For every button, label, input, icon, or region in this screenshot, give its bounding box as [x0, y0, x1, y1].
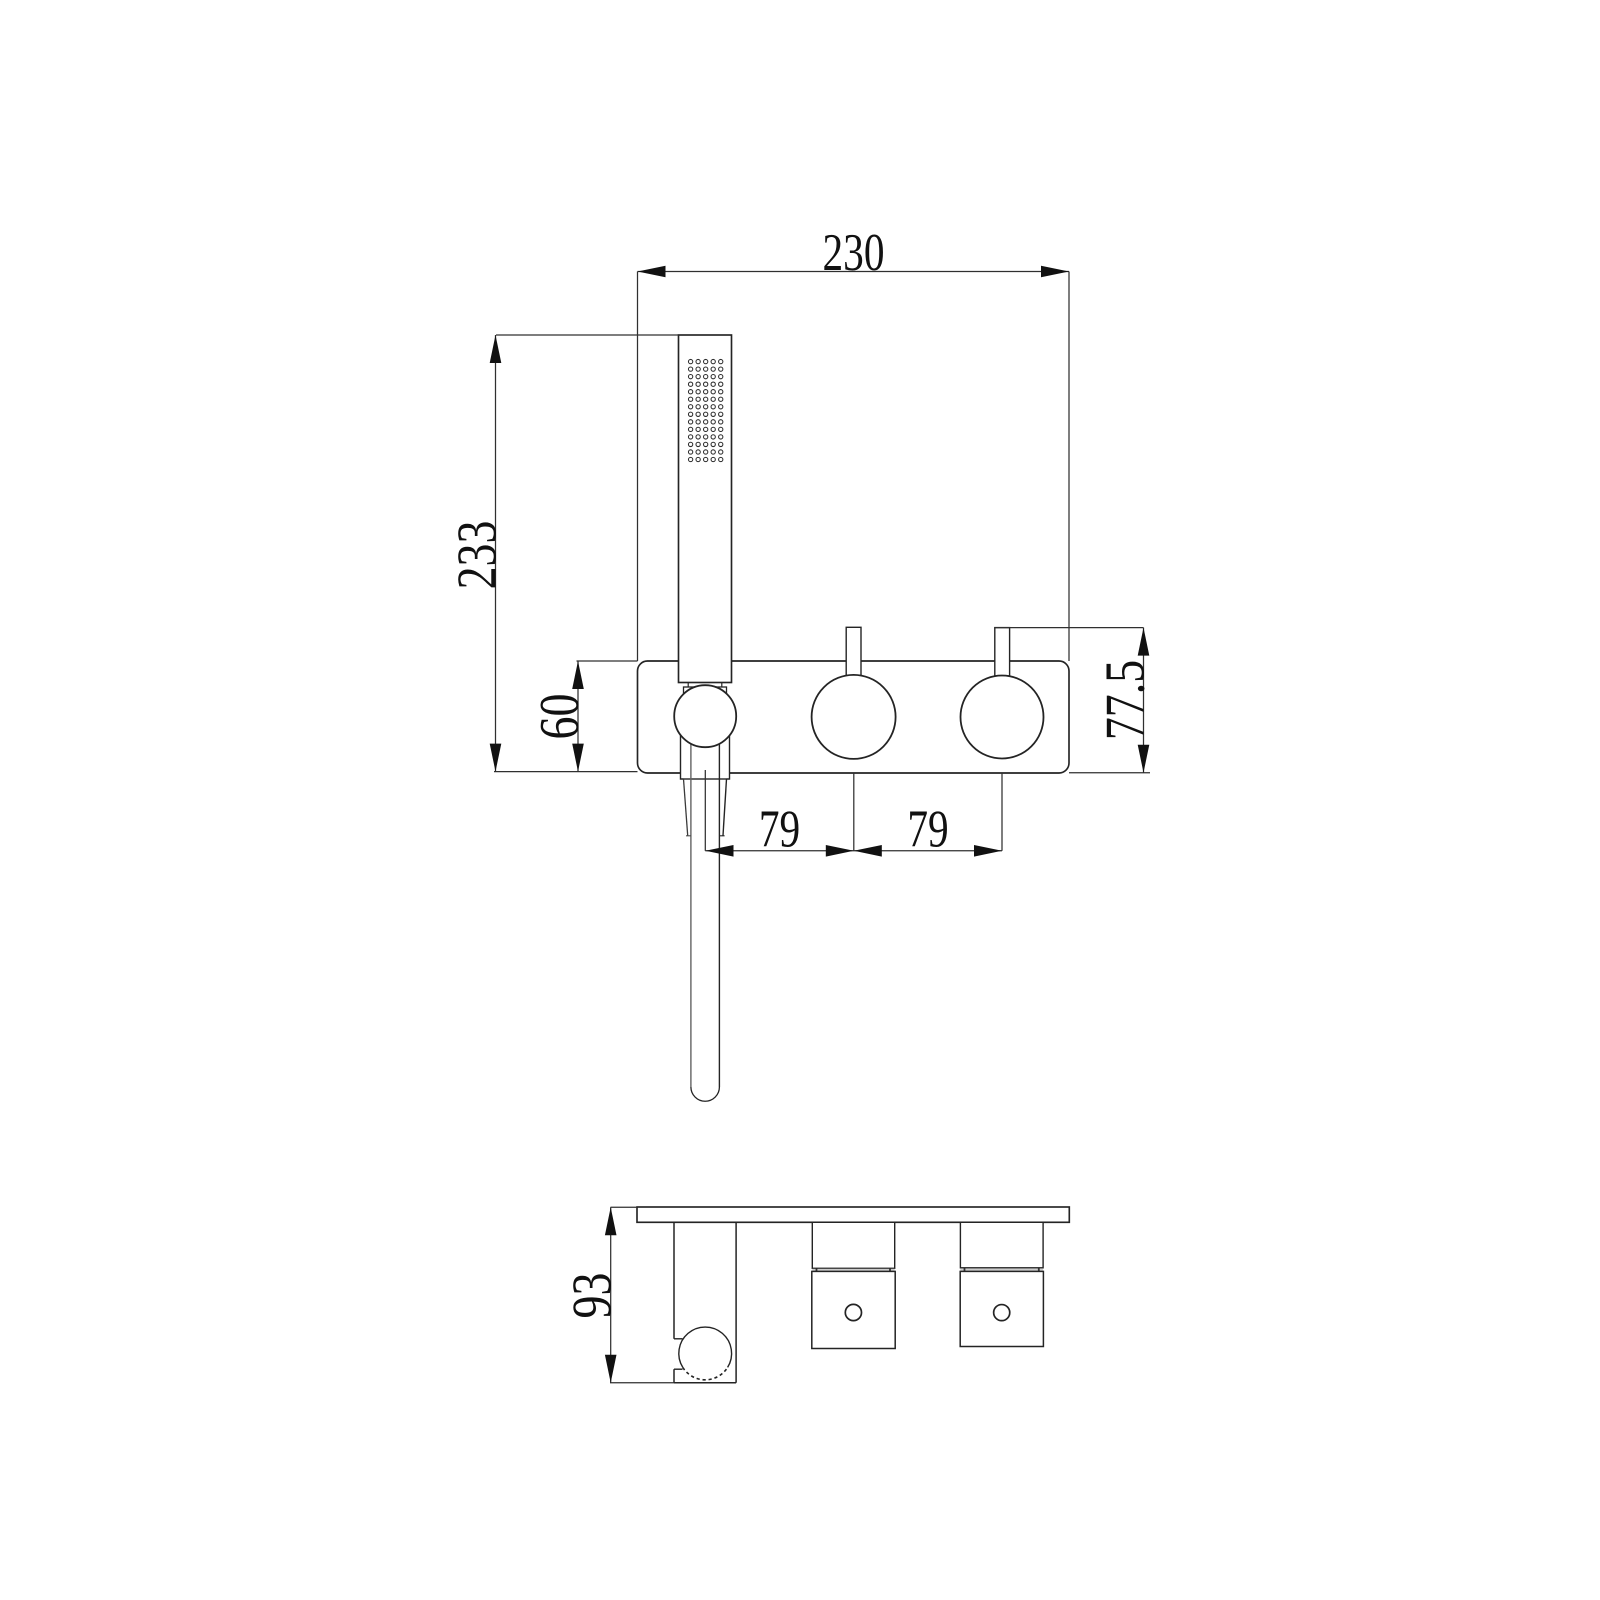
svg-text:77.5: 77.5 [1094, 660, 1156, 740]
svg-text:233: 233 [446, 521, 508, 590]
svg-text:79: 79 [907, 801, 948, 859]
svg-text:79: 79 [759, 801, 800, 859]
svg-text:60: 60 [529, 694, 591, 740]
svg-text:93: 93 [561, 1273, 623, 1319]
svg-text:230: 230 [823, 224, 885, 282]
